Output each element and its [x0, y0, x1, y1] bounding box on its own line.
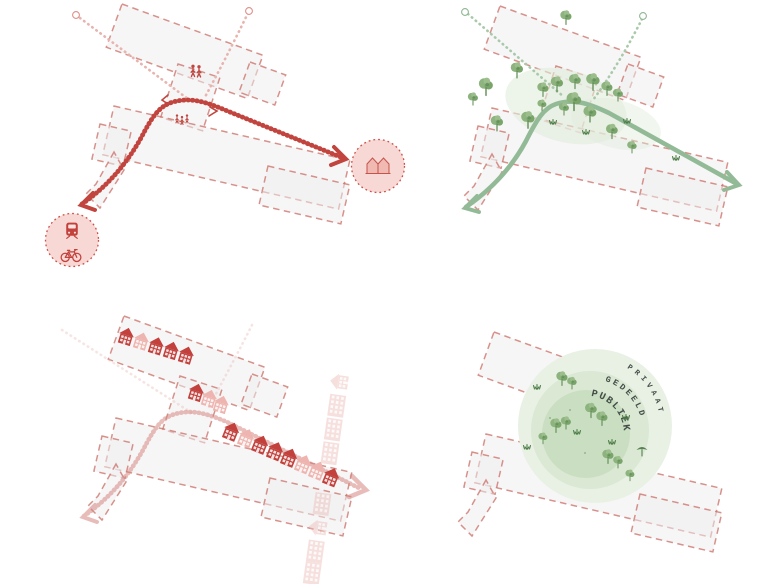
ground-dot — [584, 452, 586, 454]
destination-dot-icon — [73, 12, 80, 19]
panel-green-structure — [380, 0, 762, 290]
panel-routes — [0, 0, 380, 290]
apartment-block-icon — [313, 492, 332, 516]
diagram-grid: PRIVAAT GEDEELD PUBLIEK — [0, 0, 762, 584]
apartment-block-icon — [324, 418, 343, 442]
destination-dot-icon — [462, 9, 469, 16]
tree-icon — [560, 10, 571, 24]
panel-privacy-zones: PRIVAAT GEDEELD PUBLIEK — [380, 290, 762, 584]
site-outline — [86, 4, 350, 224]
destination-dot-icon — [246, 8, 253, 15]
house-icon — [329, 373, 349, 391]
apartment-block-icon — [321, 441, 340, 465]
panel-housing — [0, 290, 380, 584]
apartment-block-icon — [327, 394, 346, 418]
tree-icon — [479, 78, 493, 96]
apartment-block-icon — [303, 561, 322, 584]
transit-hub-badge — [46, 214, 99, 267]
neighborhood-badge — [352, 140, 405, 193]
apartment-block-icon — [306, 540, 325, 564]
site-outline — [88, 316, 352, 536]
privacy-zones — [518, 349, 672, 503]
destination-dot-icon — [640, 13, 647, 20]
tree-icon — [468, 92, 478, 105]
ground-dot — [569, 409, 571, 411]
ground-dot — [549, 417, 551, 419]
